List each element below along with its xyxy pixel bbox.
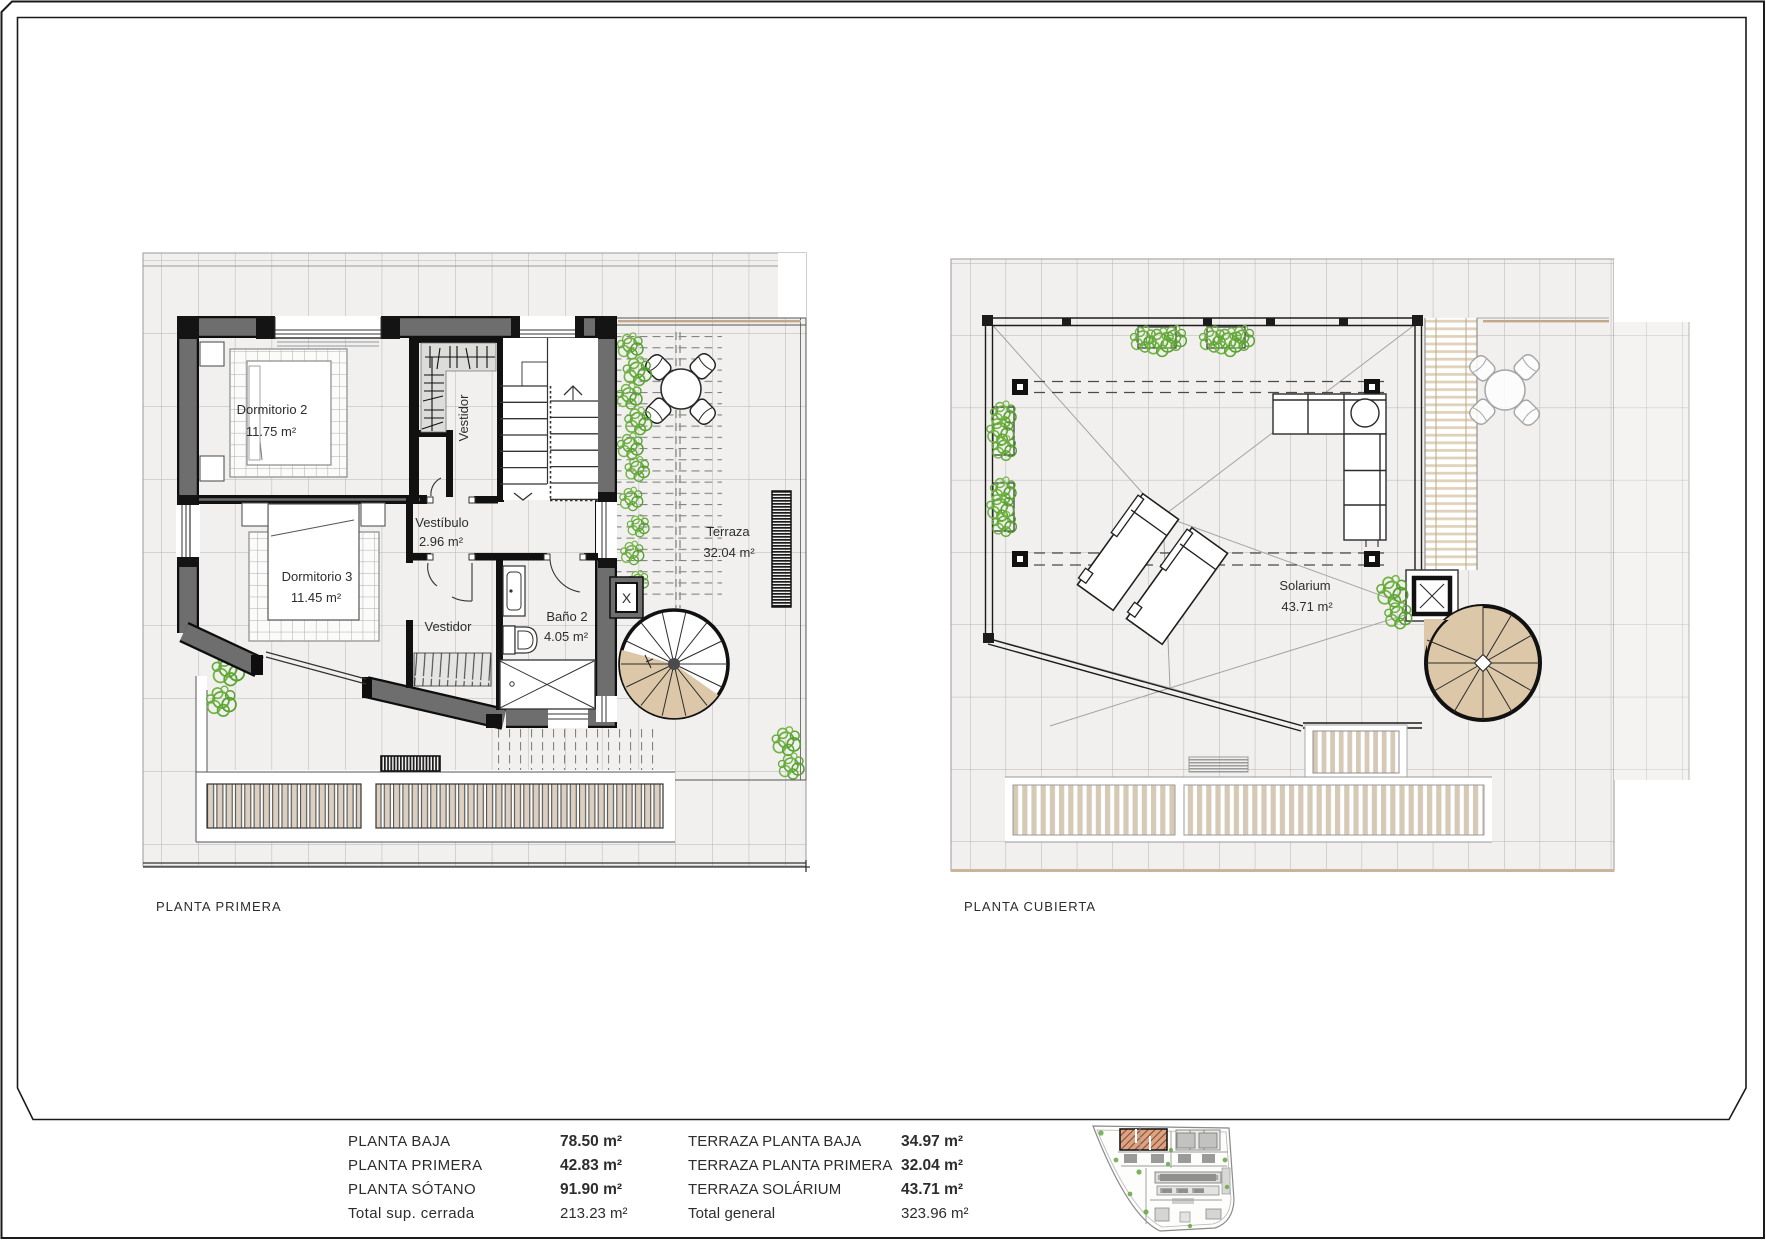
svg-text:TERRAZA PLANTA PRIMERA: TERRAZA PLANTA PRIMERA bbox=[688, 1157, 892, 1174]
svg-text:91.90 m²: 91.90 m² bbox=[560, 1181, 622, 1198]
svg-text:Solarium: Solarium bbox=[1279, 578, 1330, 593]
svg-text:Dormitorio 2: Dormitorio 2 bbox=[237, 402, 308, 417]
svg-text:Vestíbulo: Vestíbulo bbox=[415, 515, 469, 530]
svg-text:43.71 m²: 43.71 m² bbox=[901, 1181, 963, 1198]
svg-text:Vestidor: Vestidor bbox=[425, 619, 473, 634]
svg-text:32.04 m²: 32.04 m² bbox=[901, 1157, 963, 1174]
svg-text:PLANTA SÓTANO: PLANTA SÓTANO bbox=[348, 1181, 476, 1198]
svg-text:2.96 m²: 2.96 m² bbox=[419, 534, 464, 549]
svg-text:43.71 m²: 43.71 m² bbox=[1281, 599, 1333, 614]
svg-text:Vestidor: Vestidor bbox=[456, 394, 471, 442]
svg-text:323.96 m²: 323.96 m² bbox=[901, 1205, 969, 1222]
svg-text:PLANTA CUBIERTA: PLANTA CUBIERTA bbox=[964, 899, 1096, 914]
svg-text:42.83 m²: 42.83 m² bbox=[560, 1157, 622, 1174]
svg-text:11.45 m²: 11.45 m² bbox=[291, 590, 342, 605]
svg-text:Dormitorio 3: Dormitorio 3 bbox=[282, 569, 353, 584]
svg-text:PLANTA BAJA: PLANTA BAJA bbox=[348, 1133, 451, 1150]
svg-text:Baño 2: Baño 2 bbox=[546, 609, 587, 624]
svg-text:4.05 m²: 4.05 m² bbox=[544, 629, 589, 644]
svg-text:Total sup. cerrada: Total sup. cerrada bbox=[348, 1205, 475, 1222]
svg-text:32.04 m²: 32.04 m² bbox=[703, 545, 755, 560]
svg-text:TERRAZA PLANTA BAJA: TERRAZA PLANTA BAJA bbox=[688, 1133, 861, 1150]
svg-text:78.50 m²: 78.50 m² bbox=[560, 1133, 622, 1150]
svg-text:TERRAZA SOLÁRIUM: TERRAZA SOLÁRIUM bbox=[688, 1181, 841, 1198]
svg-text:PLANTA PRIMERA: PLANTA PRIMERA bbox=[156, 899, 282, 914]
svg-text:PLANTA PRIMERA: PLANTA PRIMERA bbox=[348, 1157, 483, 1174]
svg-text:213.23 m²: 213.23 m² bbox=[560, 1205, 628, 1222]
svg-text:34.97 m²: 34.97 m² bbox=[901, 1133, 963, 1150]
svg-text:Total general: Total general bbox=[688, 1205, 775, 1222]
svg-text:Terraza: Terraza bbox=[706, 524, 750, 539]
svg-text:11.75 m²: 11.75 m² bbox=[246, 424, 297, 439]
svg-text:X: X bbox=[622, 590, 632, 606]
